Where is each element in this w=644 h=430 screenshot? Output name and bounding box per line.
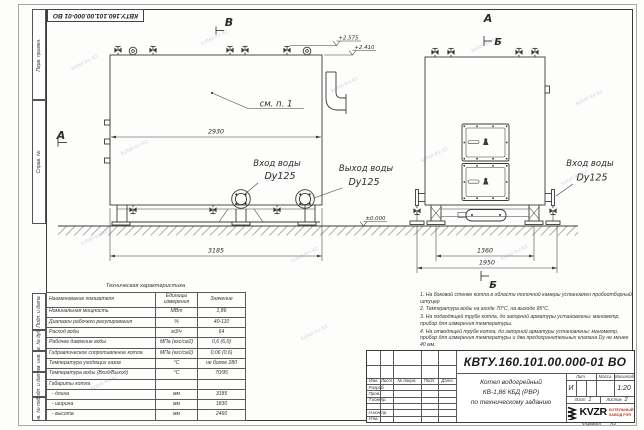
tech-table-title: Техническая характеристика — [46, 283, 245, 289]
marker-a-top-letter: А — [483, 12, 493, 25]
inlet-left-size: Dy125 — [264, 171, 295, 182]
see-note-callout: см. п. 1 — [211, 92, 304, 110]
row-value: 3185 — [198, 389, 246, 399]
header-dokum: № докум. — [393, 378, 421, 384]
row-name: Температура уходящих газов — [47, 358, 156, 368]
air-valve — [114, 46, 121, 55]
row-units: °С — [156, 369, 198, 379]
table-row: Температура воды (Вход/Выход)°С70/95 — [47, 369, 246, 379]
note-item: 2. Температура воды на входе 70°С, на вы… — [420, 306, 632, 313]
upper-furnace-door — [462, 124, 509, 161]
sheet-cell: Лист 1 — [566, 396, 600, 403]
row-name: - высота — [47, 410, 156, 420]
row-value: 1830 — [198, 400, 246, 410]
row-value — [198, 379, 246, 389]
drain-valve — [209, 205, 216, 214]
row-value: 0,06 (0,6) — [198, 348, 246, 358]
table-row: Номинальная мощностьМВт1,86 — [47, 307, 246, 317]
row-value: 0,6 (6,0) — [198, 338, 246, 348]
company-logo: KVZR КОТЕЛЬНЫЙ ЗАВОД РЭП — [566, 403, 634, 422]
left-side-nozzle — [410, 190, 425, 225]
air-valve — [531, 48, 538, 57]
sheets-value: 2 — [625, 397, 628, 403]
row-name: Рабочее давление воды — [47, 338, 156, 348]
air-valve — [447, 48, 454, 57]
inlet-right-label: Вход воды Dy125 — [556, 159, 614, 196]
elevation-boiler-top: +2.410 — [324, 45, 376, 55]
table-row: - высотамм2460 — [47, 410, 246, 420]
elevation-ground: ±0.000 — [360, 216, 387, 226]
air-valve — [515, 48, 522, 57]
row-utv: Утв. — [369, 416, 379, 422]
row-prov: Пров. — [369, 391, 381, 397]
section-marker-b-top: Б — [484, 36, 502, 48]
header-list: Лист — [380, 378, 393, 384]
table-row: Диапазон рабочего регулирования%40-110 — [47, 317, 246, 327]
table-row: - ширинамм1830 — [47, 400, 246, 410]
row-name: Гидравлическое сопротивление котла — [47, 348, 156, 358]
format-value: А3 — [610, 422, 616, 427]
dim-overall-width-value: 1950 — [479, 260, 495, 267]
section-marker-a-left: А — [56, 129, 67, 147]
drain-valve — [273, 205, 280, 214]
row-name: Габариты котла — [47, 379, 156, 389]
header-podp: Подп. — [421, 378, 438, 384]
outlet-left-size: Dy125 — [348, 177, 379, 188]
row-tkontr: Т.контр. — [369, 397, 387, 403]
inlet-right-size: Dy125 — [576, 173, 607, 184]
table-row: Рабочее давление водыМПа (кгс/см2)0,6 (6… — [47, 338, 246, 348]
outlet-left-title: Выход воды — [339, 164, 393, 174]
sheet-label: Лист — [575, 397, 586, 402]
row-name: Диапазон рабочего регулирования — [47, 317, 156, 327]
row-units: °С — [156, 358, 198, 368]
format-label: Формат — [582, 422, 601, 427]
row-value: 40-110 — [198, 317, 246, 327]
marker-a-left-letter: А — [56, 129, 66, 142]
row-units: м3/ч — [156, 328, 198, 338]
row-razrab: Разраб. — [369, 385, 385, 391]
lit-value: И — [566, 380, 576, 396]
lifting-lug — [303, 47, 311, 55]
view-marker-v: В — [216, 16, 233, 35]
row-name: Расход воды — [47, 328, 156, 338]
dim-length-value: 3185 — [208, 248, 224, 255]
marker-b-bottom-letter: Б — [489, 280, 497, 291]
row-name: Температура воды (Вход/Выход) — [47, 369, 156, 379]
elevation-valve-top: +2.575 — [290, 36, 361, 46]
row-value: 64 — [198, 328, 246, 338]
drain-valve — [129, 205, 136, 214]
front-base — [427, 205, 543, 225]
marker-b-top-letter: Б — [494, 37, 502, 48]
note-item: 4. На отводящей трубе котла, до запорной… — [420, 329, 632, 349]
tech-table: Наименование показателя Единицы измерени… — [46, 292, 246, 421]
note-item: 3. На подводящей трубе котла, до запорно… — [420, 314, 632, 327]
product-name-line2: КВ-1,86 КБД (РВР) — [456, 388, 566, 398]
product-name-line3: по техническому заданию — [456, 398, 566, 408]
row-nkontr: Н.контр. — [369, 410, 388, 416]
row-units: МВт — [156, 307, 198, 317]
col-header-units: Единицы измерения — [156, 293, 198, 308]
sheets-cell: Листов 2 — [600, 396, 634, 403]
elevation-boiler-top-value: +2.410 — [355, 45, 376, 51]
inlet-right-title: Вход воды — [566, 159, 614, 169]
row-units: МПа (кгс/см2) — [156, 348, 198, 358]
row-units: МПа (кгс/см2) — [156, 338, 198, 348]
company-subtitle-line2: ЗАВОД РЭП — [609, 413, 634, 418]
col-header-name: Наименование показателя — [47, 293, 156, 308]
boiler-side-view — [105, 46, 347, 225]
technical-notes: 1. На боковой стенке котла в области топ… — [420, 292, 632, 357]
table-row: - длинамм3185 — [47, 389, 246, 399]
dim-base-width-value: 1360 — [477, 248, 493, 255]
sheets-label: Листов — [606, 397, 621, 402]
inlet-left-title: Вход воды — [253, 159, 301, 169]
inlet-left-label: Вход воды Dy125 — [245, 159, 301, 194]
elevation-valve-top-value: +2.575 — [339, 36, 360, 42]
header-data: Дата — [438, 378, 456, 384]
dim-inner-width-value: 2930 — [208, 129, 224, 136]
row-value: 2460 — [198, 410, 246, 420]
table-row: Гидравлическое сопротивление котлаМПа (к… — [47, 348, 246, 358]
boiler-front-view — [410, 48, 560, 224]
tech-table-header: Наименование показателя Единицы измерени… — [47, 293, 246, 308]
product-name: Котел водогрейный КВ-1,86 КБД (РВР) по т… — [456, 373, 566, 422]
air-valve — [226, 46, 233, 55]
marker-v-letter: В — [225, 16, 233, 29]
elevation-ground-value: ±0.000 — [366, 216, 387, 222]
table-row: Температура уходящих газов°Сне более 280 — [47, 358, 246, 368]
air-valve — [431, 48, 438, 57]
outlet-elbow-pipe — [326, 72, 346, 114]
air-valve — [283, 46, 290, 55]
row-name: Номинальная мощность — [47, 307, 156, 317]
table-row: Габариты котла — [47, 379, 246, 389]
row-value: 1,86 — [198, 307, 246, 317]
note-item: 1. На боковой стенке котла в области топ… — [420, 292, 632, 305]
kvzr-emblem-icon — [566, 406, 577, 420]
outlet-left-label: Выход воды Dy125 — [314, 164, 393, 198]
product-name-line1: Котел водогрейный — [456, 378, 566, 388]
scale-label: Масштаб — [614, 374, 634, 380]
scale-value: 1:20 — [614, 380, 634, 396]
doc-number: КВТУ.160.101.00.000-01 ВО — [456, 351, 634, 373]
table-row: Расход водым3/ч64 — [47, 328, 246, 338]
company-subtitle: КОТЕЛЬНЫЙ ЗАВОД РЭП — [609, 408, 634, 417]
lifting-lug — [129, 47, 137, 55]
row-value: 70/95 — [198, 369, 246, 379]
air-valve — [149, 46, 156, 55]
company-name: KVZR — [579, 407, 606, 418]
header-izm: Изм. — [367, 378, 380, 384]
section-marker-b-bottom: Б — [481, 271, 497, 291]
mass-label: Масса — [596, 374, 614, 380]
row-units: мм — [156, 400, 198, 410]
ground-line — [58, 226, 578, 236]
see-note-text: см. п. 1 — [260, 100, 293, 110]
title-block: Изм. Лист № докум. Подп. Дата Разраб. Пр… — [366, 350, 635, 423]
row-units: мм — [156, 389, 198, 399]
row-value: не более 280 — [198, 358, 246, 368]
sheet-value: 1 — [588, 397, 591, 403]
col-header-value: Значение — [198, 293, 246, 308]
view-marker-a-top: А — [483, 12, 493, 25]
drawing-sheet: kotel-kv.kz kotel-kv.kz kotel-kv.kz kote… — [0, 0, 644, 430]
format-stamp: Формат А3 — [565, 422, 633, 427]
lower-furnace-door — [462, 164, 509, 201]
row-units — [156, 379, 198, 389]
lit-label: Лит. — [566, 374, 596, 380]
air-valve — [241, 46, 248, 55]
row-name: - длина — [47, 389, 156, 399]
row-units: % — [156, 317, 198, 327]
dimension-inner-width: 2930 — [111, 129, 321, 138]
row-name: - ширина — [47, 400, 156, 410]
row-units: мм — [156, 410, 198, 420]
